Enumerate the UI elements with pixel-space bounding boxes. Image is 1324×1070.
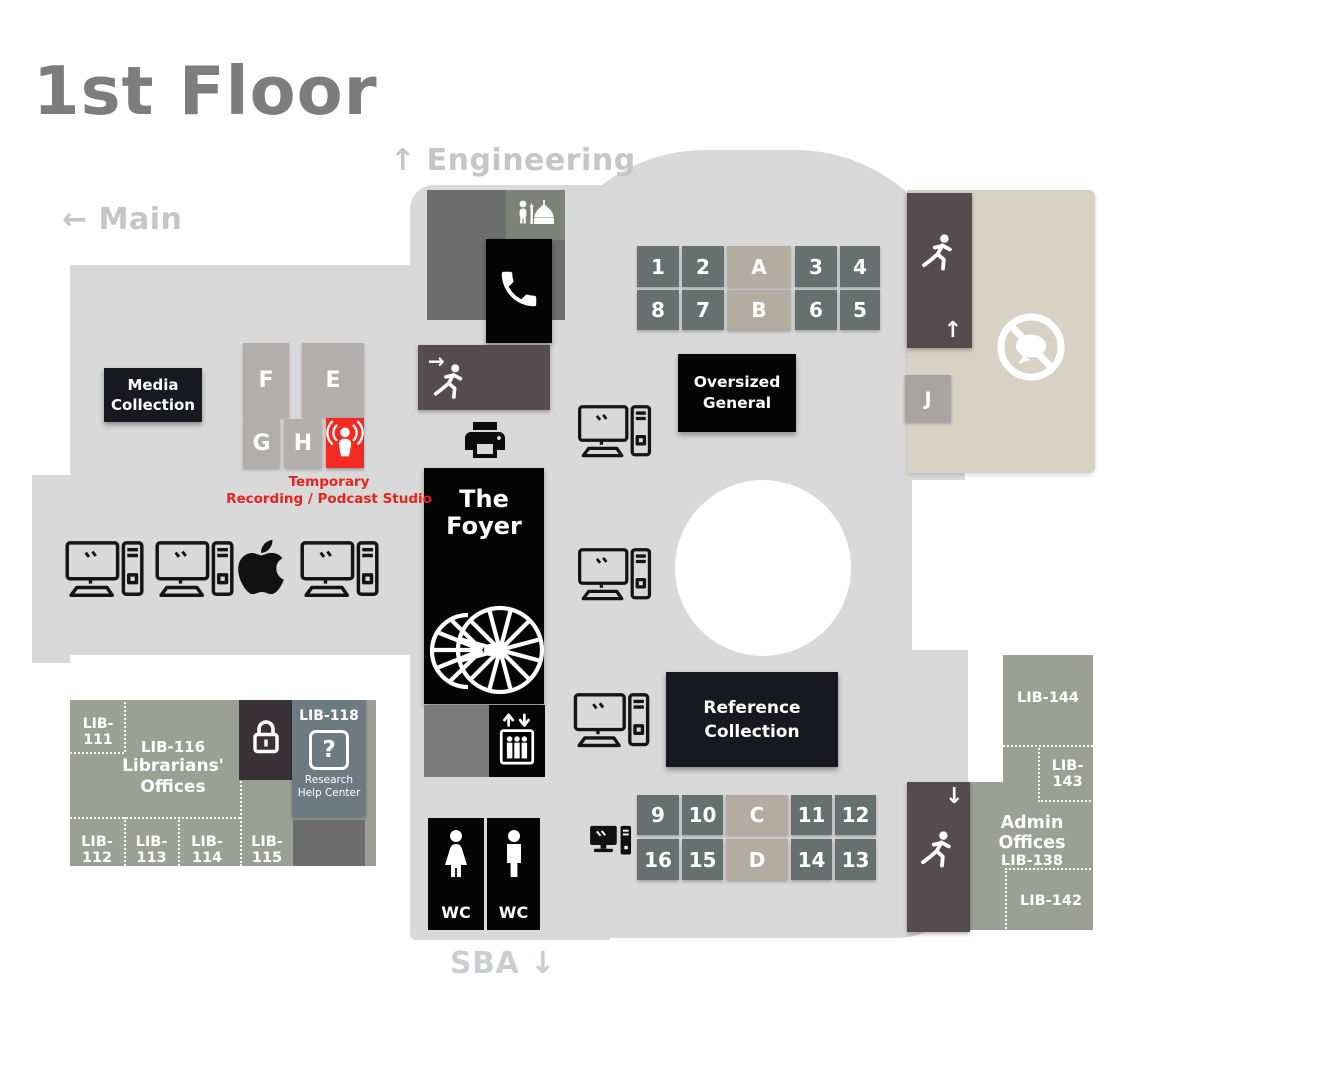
no-talking-icon (993, 309, 1069, 385)
direction-engineering: ↑ Engineering (390, 143, 636, 178)
media-line2: Collection (111, 395, 195, 415)
partition-line (178, 817, 180, 866)
computer-station (63, 540, 147, 606)
room-reference-collection: Reference Collection (666, 672, 838, 767)
wc-women: WC (428, 818, 484, 930)
admin-id: LIB-138 (972, 853, 1092, 869)
podcast-studio-note: Temporary Recording / Podcast Studio (204, 474, 454, 508)
running-person-exit-icon (428, 361, 474, 411)
room-lib-112: LIB-112 (70, 834, 124, 866)
room-lib-138-admin: Admin Offices LIB-138 (972, 813, 1092, 869)
computer-station (153, 540, 237, 606)
shelf-6: 6 (795, 290, 837, 330)
emergency-exit-northeast: ↑ (907, 193, 972, 348)
podcast-icon (326, 417, 364, 469)
direction-main: ← Main (62, 202, 182, 237)
direction-sba: SBA ↓ (450, 946, 556, 981)
librarians-line2: Offices (103, 777, 243, 798)
floor-plan: 1st Floor ↑ Engineering ← Main SBA ↓ (0, 0, 1324, 1070)
phone-icon (496, 266, 542, 316)
wc-label: WC (428, 903, 484, 922)
emergency-exit-southeast: ↓ (907, 782, 970, 932)
computer-station (298, 540, 382, 606)
printer-icon (461, 416, 509, 464)
elevator-icon (496, 710, 538, 772)
librarians-line1: Librarians' (103, 756, 243, 777)
locked-room (239, 700, 292, 780)
shelf-11: 11 (791, 795, 832, 835)
female-icon (436, 828, 476, 894)
oversized-line1: Oversized (694, 372, 781, 393)
left-arrow-icon: ← (62, 202, 88, 237)
shelf-3: 3 (795, 246, 837, 287)
up-arrow-icon: ↑ (944, 320, 962, 342)
apple-logo-icon (236, 536, 286, 602)
partition-line (240, 778, 242, 866)
phone-room (486, 239, 552, 343)
computer-station-small (590, 824, 634, 868)
foyer-label-line2: Foyer (446, 513, 522, 540)
running-person-exit-icon (915, 828, 963, 880)
elevator (489, 705, 545, 777)
room-lib-118-research-help: LIB-118 ? Research Help Center (292, 700, 366, 817)
room-oversized-general: Oversized General (678, 354, 796, 432)
shelf-8: 8 (637, 290, 679, 330)
room-lib-144: LIB-144 (1008, 690, 1088, 706)
study-room-E: E (302, 343, 364, 417)
oversized-line2: General (703, 393, 771, 414)
podcast-note-line2: Recording / Podcast Studio (204, 491, 454, 508)
shelf-1: 1 (637, 246, 679, 287)
admin-title: Admin Offices (972, 813, 1092, 853)
partition-line (70, 817, 240, 819)
shelf-B: B (727, 290, 791, 330)
shelf-9: 9 (637, 795, 679, 835)
shelf-2: 2 (682, 246, 724, 287)
shelf-12: 12 (835, 795, 876, 835)
shelf-A: A (727, 246, 791, 287)
elevator-lobby (424, 705, 489, 777)
partition-line (124, 817, 126, 866)
lib-118-id: LIB-118 (292, 708, 366, 724)
shelf-4: 4 (840, 246, 880, 287)
shelf-10: 10 (682, 795, 723, 835)
room-media-collection: Media Collection (104, 368, 202, 422)
room-lib-114: LIB-114 (180, 834, 234, 866)
shelf-J: J (905, 375, 951, 422)
utility-room (293, 820, 365, 866)
computer-station (576, 547, 654, 609)
down-arrow-icon: ↓ (945, 786, 963, 808)
shelf-16: 16 (637, 839, 679, 880)
partition-line (70, 752, 124, 754)
question-mark-icon: ? (309, 730, 349, 770)
computer-station (572, 692, 652, 756)
shelf-13: 13 (835, 839, 876, 880)
foyer-label-line1: The (446, 486, 522, 513)
shelf-7: 7 (682, 290, 724, 330)
room-lib-143: LIB-143 (1038, 748, 1095, 802)
study-room-F: F (243, 343, 289, 417)
partition-line (124, 702, 126, 752)
shelf-C: C (726, 795, 788, 835)
shelf-14: 14 (791, 839, 832, 880)
study-room-G: G (243, 419, 280, 468)
room-lib-113: LIB-113 (126, 834, 177, 866)
up-arrow-icon: ↑ (390, 143, 416, 178)
emergency-exit-center: → (418, 345, 550, 410)
study-room-H: H (284, 419, 322, 468)
podcast-note-line1: Temporary (204, 474, 454, 491)
shelf-5: 5 (840, 290, 880, 330)
media-line1: Media (127, 375, 178, 395)
shelf-D: D (726, 839, 788, 880)
research-help-label: Research Help Center (292, 774, 366, 800)
wc-label: WC (487, 903, 540, 922)
page-title: 1st Floor (33, 52, 378, 130)
room-lib-115: LIB-115 (240, 834, 294, 866)
spiral-staircase-icon (424, 598, 544, 702)
atrium-circle (675, 480, 851, 656)
prayer-room-icon-tile (506, 190, 565, 240)
partition-line (1003, 745, 1093, 747)
down-arrow-icon: ↓ (530, 946, 556, 981)
podcast-studio (326, 418, 364, 468)
shelf-15: 15 (682, 839, 723, 880)
male-icon (494, 828, 534, 894)
wc-men: WC (487, 818, 540, 930)
room-lib-142: LIB-142 (1005, 868, 1095, 932)
lock-icon (249, 718, 283, 762)
computer-station (576, 404, 654, 466)
reference-line1: Reference (703, 696, 800, 720)
running-person-exit-icon (916, 231, 964, 283)
person-mosque-icon (514, 198, 558, 232)
reference-line2: Collection (704, 720, 799, 744)
